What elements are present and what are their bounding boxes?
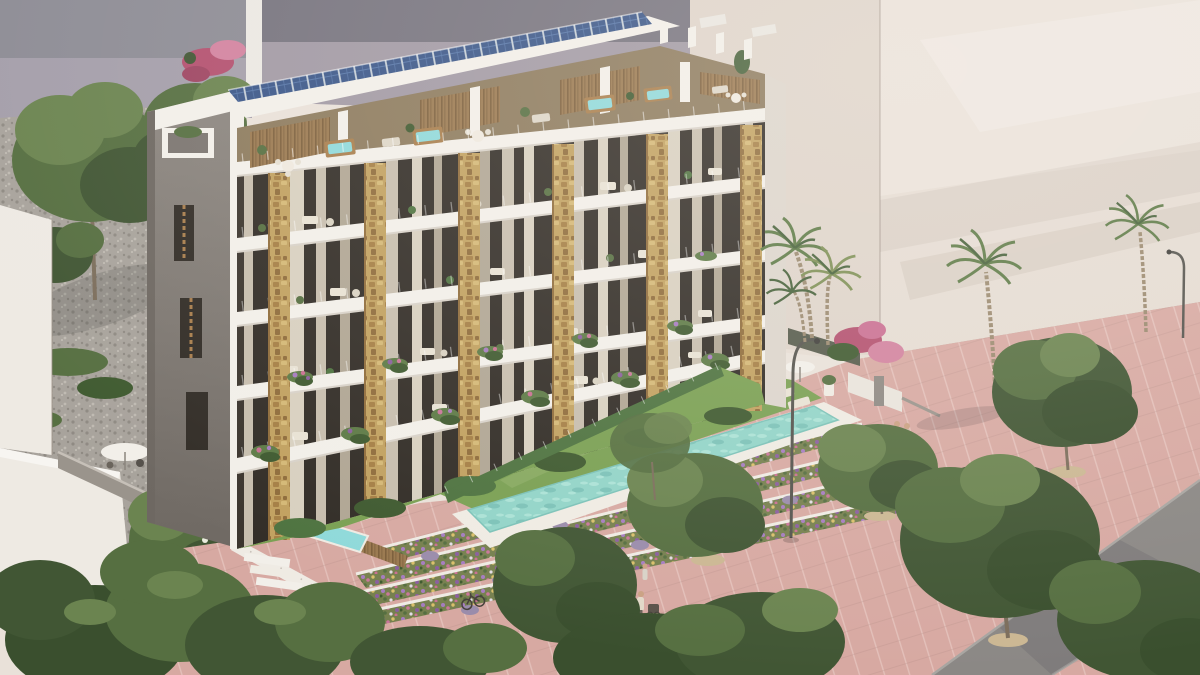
atmosphere-haze (0, 0, 1200, 675)
scene-svg (0, 0, 1200, 675)
architectural-render-image (0, 0, 1200, 675)
